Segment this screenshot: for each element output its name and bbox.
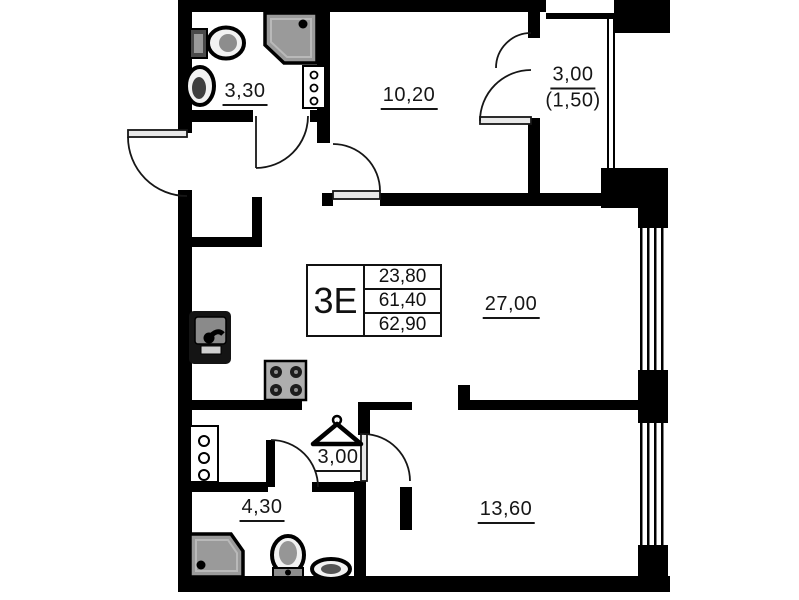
- wall-right-block-b: [638, 168, 668, 228]
- door-leaf-entrance: [128, 130, 187, 137]
- wall-balcony-divider-lower: [528, 118, 540, 200]
- kitchen-sink-icon: [189, 311, 231, 364]
- door-leaf-balcony: [480, 117, 531, 124]
- hanger-icon: [313, 416, 361, 444]
- wall-balcony-corner: [614, 0, 670, 33]
- window-room-bottom: [661, 423, 664, 545]
- windows: [607, 19, 664, 545]
- door-leaf-wardrobe: [266, 440, 275, 487]
- window-room-bottom: [647, 423, 650, 545]
- wall-bottom: [178, 576, 670, 592]
- unit-area-row: 23,80: [365, 266, 440, 290]
- stove-icon: [265, 361, 306, 400]
- door-leaf-bedroom: [333, 191, 380, 199]
- wall-bathroom-top-bottom: [185, 110, 253, 122]
- toilet-top-icon: [190, 28, 244, 59]
- balcony-glazing-line: [607, 19, 609, 169]
- wall-jamb-stub: [458, 385, 470, 400]
- door-leaf-nook: [361, 434, 367, 481]
- wall-corridor-vertical-lower: [354, 481, 366, 578]
- wall-right-block-c: [638, 370, 668, 423]
- door-arc-bathroom-top: [256, 116, 308, 168]
- door-arc-balcony: [480, 70, 531, 121]
- wall-kitchen-south: [190, 400, 302, 410]
- window-room-bottom: [640, 423, 643, 545]
- riser-cabinet-bottom-icon: [190, 426, 218, 482]
- unit-type-cell: 3Е: [308, 266, 365, 335]
- area-label-living-kitchen: 27,00: [483, 293, 540, 319]
- balcony-glazing-line: [613, 19, 615, 169]
- floorplan-page: 3,30 10,20 3,00 (1,50) 27,00 3,00 4,30 1…: [0, 0, 799, 600]
- unit-area-rows: 23,80 61,40 62,90: [365, 266, 440, 335]
- riser-cabinet-top-icon: [303, 66, 325, 108]
- area-label-bathroom-top: 3,30: [223, 80, 268, 106]
- wall-hall-main: [380, 193, 640, 206]
- wall-nook-east: [400, 487, 412, 530]
- area-label-balcony: 3,00 (1,50): [543, 64, 602, 113]
- wall-bathroom-bottom-top-left: [190, 482, 268, 492]
- area-label-room-bottom: 13,60: [478, 498, 535, 524]
- wall-right-block-d: [638, 545, 668, 590]
- unit-area-row: 62,90: [365, 314, 440, 336]
- window-living: [654, 227, 657, 370]
- unit-area-row: 61,40: [365, 290, 440, 314]
- area-label-bathroom-bottom: 4,30: [240, 496, 285, 522]
- door-arc-entrance: [128, 137, 187, 196]
- wall-bathroom-top-jamb: [310, 110, 330, 122]
- wall-living-south: [458, 400, 640, 410]
- door-arc-nook: [364, 434, 410, 481]
- wall-hall-left-piece: [322, 193, 333, 206]
- wall-niche-horizontal: [188, 237, 262, 247]
- window-room-bottom: [654, 423, 657, 545]
- window-living: [647, 227, 650, 370]
- wall-niche-vertical: [252, 197, 262, 247]
- window-arc-balcony: [496, 33, 531, 68]
- window-living: [640, 227, 643, 370]
- shower-bottom-icon: [190, 534, 243, 577]
- door-arc-wardrobe: [271, 440, 318, 487]
- unit-stamp-table: 3Е 23,80 61,40 62,90: [306, 264, 442, 337]
- wall-top: [178, 0, 546, 12]
- sink-bottom-icon: [312, 559, 350, 579]
- wall-balcony-top: [546, 13, 614, 19]
- toilet-bottom-icon: [272, 536, 304, 577]
- wall-corridor-vertical-upper: [358, 402, 370, 435]
- area-label-bedroom: 10,20: [381, 84, 438, 110]
- area-label-wardrobe: 3,00: [316, 446, 361, 472]
- wall-left-lower: [178, 190, 192, 582]
- window-living: [661, 227, 664, 370]
- sink-top-icon: [186, 67, 214, 105]
- shower-top-icon: [265, 13, 317, 63]
- door-arc-bedroom: [333, 144, 380, 191]
